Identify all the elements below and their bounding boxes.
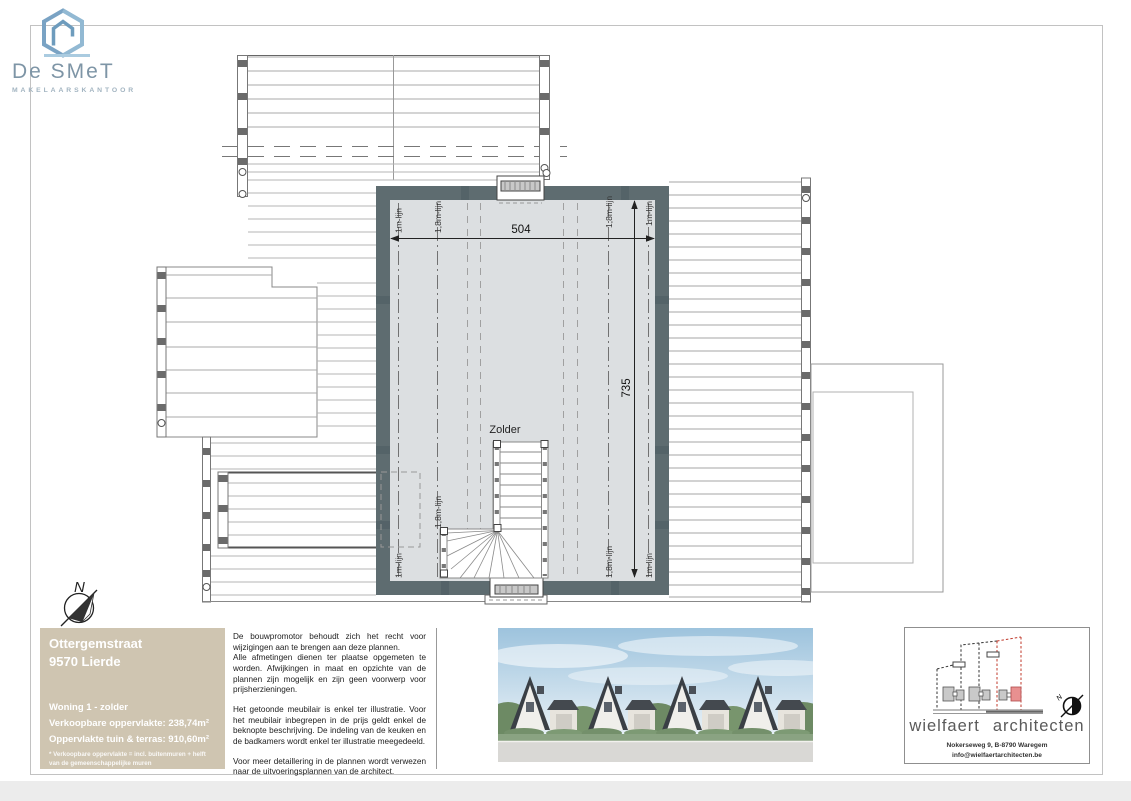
- architect-name-right: architecten: [993, 717, 1085, 736]
- guide-label-18m: 1,8m-lijn: [604, 196, 614, 228]
- dim-width-value: 504: [511, 224, 531, 236]
- attic-window: [485, 578, 547, 604]
- logo-subtitle: MAKELAARSKANTOOR: [12, 87, 162, 94]
- terrace-outline: [811, 364, 943, 592]
- unit-label: Woning 1 - zolder: [49, 702, 215, 713]
- disclaimer-p1: De bouwpromotor behoudt zich het recht v…: [233, 632, 426, 653]
- disclaimer-p4: Voor meer detaillering in de plannen wor…: [233, 757, 426, 778]
- mini-compass-label: N: [1056, 693, 1065, 702]
- guide-label-1m: 1m-lijn: [394, 208, 404, 233]
- left-roof-lower: [203, 437, 378, 602]
- disclaimer-p3: Het getoonde meubilair is enkel ter illu…: [233, 705, 426, 748]
- mini-compass-icon: N: [1053, 688, 1087, 720]
- guide-label-18m: 1,8m-lijn: [433, 496, 443, 528]
- project-rendering: [498, 628, 813, 762]
- architect-name-left: wielfaert: [909, 717, 979, 736]
- dormer-outline: [218, 472, 377, 548]
- area-sellable: Verkoopbare oppervlakte: 238,74m²: [49, 718, 215, 729]
- disclaimer-p2: Alle afmetingen dienen ter plaatse opgem…: [233, 653, 426, 696]
- guide-label-18m: 1,8m-lijn: [433, 201, 443, 233]
- site-sketch: [931, 631, 1051, 719]
- left-roof-upper: [157, 267, 317, 437]
- north-arrow: N: [61, 579, 97, 626]
- logo-de-smet: De SMeT MAKELAARSKANTOOR: [12, 8, 162, 94]
- room-label: Zolder: [489, 424, 521, 436]
- right-roof-plane: [669, 178, 811, 602]
- area-garden: Oppervlakte tuin & terras: 910,60m²: [49, 734, 215, 745]
- dim-height-value: 735: [621, 378, 633, 397]
- gutter-post-right: [540, 56, 550, 180]
- page-bottom-margin: [0, 781, 1131, 801]
- left-roof-mid-band: [317, 283, 376, 426]
- guide-label-1m: 1m-lijn: [644, 553, 654, 578]
- logo-name: De SMeT: [12, 60, 162, 84]
- plan-sheet: { "logo": { "name": "De SMeT", "subtitle…: [0, 0, 1131, 801]
- architect-address: Nokerseweg 9, B-8790 Waregem: [905, 742, 1089, 749]
- architect-name: wielfaert architecten: [905, 717, 1089, 736]
- area-footnote: * Verkoopbare oppervlakte = incl. buiten…: [49, 751, 207, 768]
- disclaimer-panel: De bouwpromotor behoudt zich het recht v…: [228, 628, 437, 769]
- gutter-post-left: [238, 56, 248, 198]
- roof-band-left-of-attic: [248, 193, 376, 258]
- logo-hexagon-icon: [36, 8, 90, 58]
- architect-email: info@wielfaertarchitecten.be: [905, 752, 1089, 759]
- guide-label-1m: 1m-lijn: [394, 553, 404, 578]
- project-city: 9570 Lierde: [49, 653, 215, 671]
- architect-box: N wielfaert architecten Nokerseweg 9, B-…: [904, 627, 1090, 764]
- guide-label-18m: 1,8m-lijn: [604, 546, 614, 578]
- project-street: Ottergemstraat: [49, 635, 215, 653]
- guide-label-1m: 1m-lijn: [644, 201, 654, 226]
- title-block: Ottergemstraat 9570 Lierde Woning 1 - zo…: [40, 628, 225, 769]
- attic-room: 1m-lijn 1,8m-lijn 1,8m-lijn 1m-lijn 1m-l…: [376, 170, 669, 605]
